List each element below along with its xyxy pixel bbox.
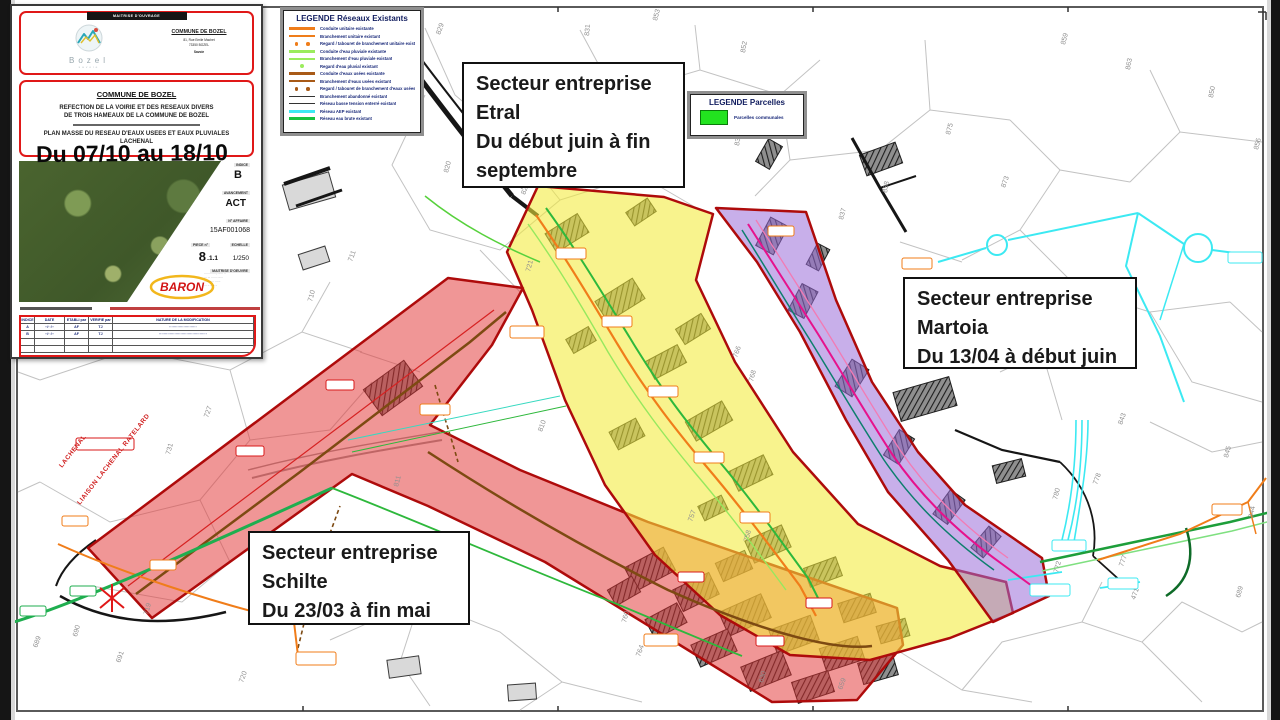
revision-header-cell: DATE [35, 317, 65, 324]
affaire-value: 15AF001068 [210, 227, 250, 234]
caption-bar [20, 307, 92, 310]
revision-cell: TJ [89, 331, 113, 338]
project-title-line2: DE TROIS HAMEAUX DE LA COMMUNE DE BOZEL [21, 112, 252, 120]
legend-row: Conduite d'eaux usées existante [289, 70, 415, 78]
sector-martoia-line2: Martoia [917, 314, 1123, 343]
svg-text:760: 760 [621, 610, 631, 623]
road-name-labels: LACHENALLIAISON LACHENAL RATELARD [58, 413, 151, 507]
title-block-photo-section: INDICE B AVANCEMENT ACT N° AFFAIRE 15AF0… [19, 161, 254, 302]
legend-row: Regard d'eau pluvial existant [289, 63, 415, 71]
sector-martoia-line3: Du 13/04 à début juin [917, 343, 1123, 372]
svg-text:711: 711 [347, 250, 357, 263]
echelle-value: 1/250 [233, 255, 249, 262]
right-edge-bar [1271, 0, 1280, 720]
date-annotation: Du 07/10 au 18/10 [36, 139, 256, 168]
affaire-label: N° AFFAIRE [226, 219, 250, 223]
svg-text:873: 873 [1000, 175, 1011, 188]
legend-row: Conduite d'eau pluviale existante [289, 48, 415, 56]
revision-header-cell: INDICE [21, 317, 35, 324]
revision-cell [21, 346, 35, 353]
legend-row: Regard / tabouret de branchement unitair… [289, 40, 415, 48]
indice-value: B [234, 169, 242, 181]
legend-row: Conduite unitaire existante [289, 25, 415, 33]
svg-text:845: 845 [1223, 445, 1233, 458]
sector-box-etral: Secteur entreprise Etral Du début juin à… [462, 62, 685, 188]
moe-address: ····· ·······, ······ ·· ··· ··· ······ … [204, 271, 252, 287]
svg-text:837: 837 [838, 207, 848, 220]
svg-text:LIAISON LACHENAL RATELARD: LIAISON LACHENAL RATELARD [76, 413, 151, 507]
revision-cell: ··/··/·· [35, 331, 65, 338]
divider [73, 124, 200, 126]
svg-text:859: 859 [1060, 32, 1070, 45]
svg-text:768: 768 [748, 369, 758, 382]
plan-page: 8538528298318308208248388378598638758738… [0, 0, 1280, 720]
sector-schilte-line1: Secteur entreprise [262, 539, 456, 568]
revision-cell [89, 346, 113, 353]
svg-text:780: 780 [1052, 487, 1062, 500]
phase-value: ACT [225, 198, 246, 209]
piece-value-major: 8 [199, 249, 206, 264]
parcel-swatch [700, 110, 728, 125]
sector-box-schilte: Secteur entreprise Schilte Du 23/03 à fi… [248, 531, 470, 625]
svg-text:689: 689 [1235, 585, 1245, 598]
legend-parcels: LEGENDE Parcelles Parcelles communales [690, 94, 804, 136]
legend-networks: LEGENDE Réseaux Existants Conduite unita… [283, 10, 421, 133]
title-block-owner-section: MAITRISE D'OUVRAGE Bozel savoie COMMUNE … [19, 11, 254, 75]
revision-cell: ········································ [113, 331, 254, 338]
bozel-logo: Bozel savoie [59, 23, 119, 69]
legend-row: Branchement abandonné existant [289, 93, 415, 101]
svg-text:820: 820 [443, 160, 453, 173]
phase-label: AVANCEMENT [222, 191, 250, 195]
svg-text:853: 853 [652, 8, 662, 21]
owner-address-line: Savoie [156, 50, 242, 55]
revision-cell: ······················· [113, 324, 254, 331]
svg-text:778: 778 [1092, 472, 1103, 485]
revision-cell [65, 346, 89, 353]
revision-cell [113, 346, 254, 353]
svg-text:875: 875 [945, 122, 955, 135]
revision-cell [35, 339, 65, 346]
legend-row: Branchement d'eaux usées existant [289, 78, 415, 86]
svg-text:BARON: BARON [160, 280, 204, 294]
svg-text:856: 856 [1253, 137, 1263, 150]
sector-etral-line2: Etral [476, 99, 671, 128]
sector-box-martoia: Secteur entreprise Martoia Du 13/04 à dé… [903, 277, 1137, 369]
revision-cell [113, 339, 254, 346]
revision-cell [65, 339, 89, 346]
svg-text:810: 810 [537, 419, 548, 432]
echelle-label: ECHELLE [230, 243, 250, 247]
svg-text:777: 777 [1118, 554, 1129, 567]
svg-text:766: 766 [732, 345, 743, 358]
bozel-logo-wordmark: Bozel [59, 56, 119, 65]
svg-text:863: 863 [1125, 58, 1134, 71]
bozel-logo-icon [74, 23, 104, 53]
owner-address-line: 73350 BOZEL [156, 43, 242, 48]
sector-etral-line3: Du début juin à fin septembre [476, 128, 671, 186]
caption-bar-red [110, 307, 260, 310]
right-edge-strip [1267, 0, 1271, 720]
svg-text:710: 710 [307, 289, 317, 302]
owner-header: MAITRISE D'OUVRAGE [87, 12, 187, 20]
revision-table: INDICEDATEETABLI parVERIFIE parNATURE DE… [19, 315, 256, 357]
title-block: MAITRISE D'OUVRAGE Bozel savoie COMMUNE … [10, 4, 263, 359]
legend-row: Regard / tabouret de branchement d'eaux … [289, 85, 415, 93]
revision-cell: AF [65, 324, 89, 331]
commune-title: COMMUNE DE BOZEL [21, 90, 252, 99]
revision-cell [35, 346, 65, 353]
project-title-line1: REFECTION DE LA VOIRIE ET DES RESEAUX DI… [21, 104, 252, 112]
sector-etral-line1: Secteur entreprise [476, 70, 671, 99]
svg-text:727: 727 [203, 405, 214, 418]
legend-row: Branchement unitaire existant [289, 33, 415, 41]
revision-cell [89, 339, 113, 346]
legend-row: Réseau basse tension enterré existant [289, 100, 415, 108]
svg-text:690: 690 [72, 624, 82, 637]
revision-header-cell: ETABLI par [65, 317, 89, 324]
revision-cell: ··/··/·· [35, 324, 65, 331]
revision-cell: B [21, 331, 35, 338]
svg-text:764: 764 [635, 644, 646, 657]
svg-text:843: 843 [1117, 412, 1128, 425]
bozel-logo-sub: savoie [59, 65, 119, 69]
piece-label: PIECE n° [191, 243, 210, 247]
legend-networks-title: LEGENDE Réseaux Existants [289, 14, 415, 23]
owner-address-block: COMMUNE DE BOZEL 81, Rue Emile Machet 73… [156, 29, 242, 55]
svg-text:850: 850 [1208, 86, 1217, 99]
plan-title-line1: PLAN MASSE DU RESEAU D'EAUX USEES ET EAU… [21, 130, 252, 138]
revision-header-cell: VERIFIE par [89, 317, 113, 324]
owner-name: COMMUNE DE BOZEL [156, 29, 242, 35]
sector-schilte-line2: Schilte [262, 568, 456, 597]
svg-text:720: 720 [238, 670, 249, 683]
piece-value-minor: .1.1 [207, 255, 218, 262]
legend-row: Réseau eau brute existant [289, 115, 415, 123]
revision-cell: AF [65, 331, 89, 338]
parcel-swatch-label: Parcelles communales [734, 115, 784, 120]
svg-text:838: 838 [882, 181, 891, 194]
svg-text:829: 829 [435, 22, 446, 35]
svg-text:852: 852 [740, 41, 749, 54]
legend-parcels-title: LEGENDE Parcelles [696, 98, 798, 107]
revision-cell [21, 339, 35, 346]
svg-text:731: 731 [165, 442, 175, 455]
legend-row: Réseau AEP existant [289, 108, 415, 116]
svg-text:831: 831 [584, 24, 592, 36]
svg-text:691: 691 [115, 650, 126, 663]
svg-text:689: 689 [32, 635, 43, 648]
revision-cell: A [21, 324, 35, 331]
sector-martoia-line1: Secteur entreprise [917, 285, 1123, 314]
svg-text:LACHENAL: LACHENAL [58, 434, 88, 470]
legend-row: Branchement d'eau pluviale existant [289, 55, 415, 63]
sector-schilte-line3: Du 23/03 à fin mai [262, 597, 456, 626]
revision-cell: TJ [89, 324, 113, 331]
revision-header-cell: NATURE DE LA MODIFICATION [113, 317, 254, 324]
